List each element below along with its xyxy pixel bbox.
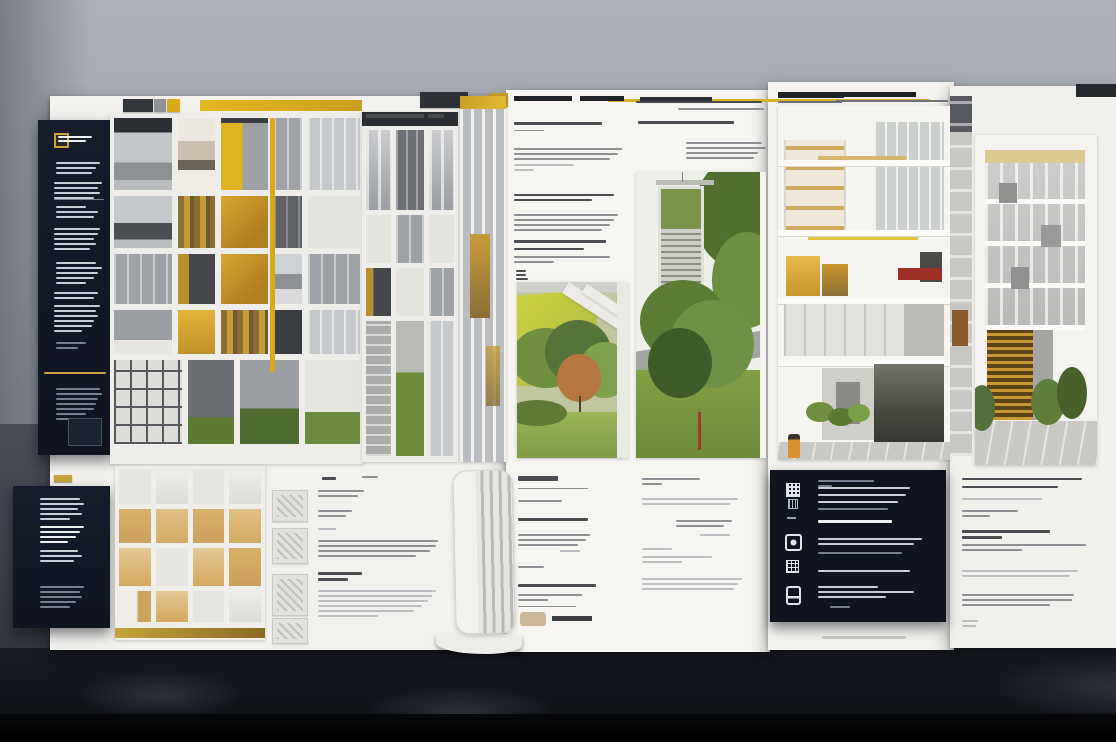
dark-window (999, 183, 1017, 203)
dark-window (1041, 225, 1061, 247)
large-tree-foliage (648, 328, 712, 398)
main-text-column (316, 470, 460, 646)
planting (848, 404, 870, 422)
top-right-dark-bar (1076, 84, 1116, 97)
facade-cell (114, 360, 182, 444)
facade-cell (119, 470, 151, 504)
sketch-thumbnail (272, 574, 308, 616)
top-chip-yellow (167, 99, 180, 112)
facade-cell (114, 196, 172, 248)
navy-info-panel-top (38, 120, 112, 455)
facade-cell (156, 548, 188, 586)
top-chip-gray (154, 99, 166, 112)
sketch-thumbnail (272, 618, 308, 644)
red-bench (898, 268, 942, 280)
wood-panel-fragment (952, 310, 968, 346)
facade-cell (114, 118, 172, 190)
header-bar (778, 92, 844, 98)
sketch-thumbnail (272, 490, 308, 522)
photo-edge (760, 172, 766, 458)
facade-cell (229, 470, 261, 504)
facade-cell (274, 196, 302, 248)
facade-cell (193, 591, 225, 622)
facade-fragment-strip (950, 96, 972, 456)
facade-cell (114, 254, 172, 304)
center-left-text (512, 92, 630, 282)
gray-wall-block (904, 304, 944, 356)
facade-cell (305, 360, 360, 444)
photo-edge (617, 282, 628, 458)
presentation-boards-photo: Photograph of architectural competition … (0, 0, 1116, 742)
facade-cell (221, 254, 268, 304)
facade-cell (221, 118, 268, 190)
facade-cell (119, 509, 151, 543)
floor-slab (778, 230, 950, 237)
top-accent-band (200, 100, 362, 111)
facade-cell (308, 254, 360, 304)
navy-bottom-text (13, 486, 110, 628)
facade-cell (178, 254, 215, 304)
facade-strip (460, 96, 506, 462)
cutaway-section-photo (778, 106, 950, 460)
navy-info-panel-bottom (13, 486, 110, 628)
facade-cell (119, 548, 151, 586)
facade-cell (193, 509, 225, 543)
strip-amber-patch (486, 346, 500, 406)
facade-cell (274, 310, 302, 354)
navy-sketch-figure (68, 418, 102, 446)
footer-rule (822, 636, 906, 639)
roof-line (656, 180, 714, 185)
white-cabinets (784, 304, 904, 356)
wood-shelf-unit (784, 140, 846, 230)
bottom-center-right-text (640, 470, 764, 640)
upper-glazing (874, 122, 944, 230)
facade-cell (156, 509, 188, 543)
facade-cell (188, 360, 234, 444)
tree-photo-tall (636, 172, 766, 458)
sketch-thumbnail (272, 528, 308, 564)
facade-cell (114, 310, 172, 354)
header-bar (836, 92, 916, 97)
house-model-grid (119, 470, 261, 622)
antenna (682, 172, 683, 182)
center-right-text (634, 92, 766, 172)
gold-tag (54, 475, 72, 482)
storefront-glazing (874, 364, 944, 448)
floor-slab (778, 160, 950, 167)
material-swatch (520, 612, 546, 626)
strip-amber-patch (470, 234, 490, 318)
figure-orange (788, 434, 800, 458)
facade-cell (156, 591, 188, 622)
facade-main-upper-grid (114, 118, 360, 354)
facade-cell (308, 196, 360, 248)
elevation-photo (975, 135, 1097, 465)
facade-cell (178, 196, 215, 248)
pavement (975, 421, 1097, 465)
bold-rule (552, 616, 592, 621)
tree-photo-small (517, 282, 628, 458)
facade-photo-main (110, 114, 364, 464)
facade-cell (156, 470, 188, 504)
roof-tan-band (985, 150, 1085, 163)
top-chip-dark (123, 99, 153, 112)
yellow-mullion (270, 118, 275, 372)
autumn-tree-foliage (557, 354, 601, 402)
facade-cell (229, 548, 261, 586)
facade-cell (229, 509, 261, 543)
facade-cell (308, 310, 360, 354)
planting (1057, 367, 1087, 419)
dark-window (1011, 267, 1029, 289)
facade-photo-secondary (362, 112, 458, 462)
header-rule (778, 101, 842, 103)
facade-cell (221, 310, 268, 354)
facade-secondary-label (362, 112, 458, 462)
facade-cell (274, 254, 302, 304)
facade-cell (193, 470, 225, 504)
rounded-interior-photo (452, 469, 515, 634)
red-tree-trunk (698, 412, 701, 450)
navy-spec-panel (770, 470, 946, 622)
facade-cell (178, 310, 215, 354)
facade-cell (229, 591, 261, 622)
facade-cell (119, 591, 151, 622)
pavement (778, 442, 950, 460)
spec-text (770, 470, 946, 622)
facade-cell (193, 548, 225, 586)
house-model-photo (115, 466, 265, 640)
facade-main-ground-grid (114, 360, 360, 444)
amber-cabinet (822, 264, 848, 296)
amber-cabinet (786, 256, 820, 296)
facade-cell (240, 360, 299, 444)
facade-cell (221, 196, 268, 248)
navy-top-text (38, 120, 112, 455)
strip-gold-band (460, 96, 506, 109)
house-model-gold-sill (115, 628, 265, 638)
header-rule (836, 100, 948, 102)
far-right-text-block (958, 470, 1108, 640)
facade-cell (308, 118, 360, 190)
foreground-black-strip (0, 714, 1116, 742)
facade-cell (178, 118, 215, 190)
facade-cell (274, 118, 302, 190)
